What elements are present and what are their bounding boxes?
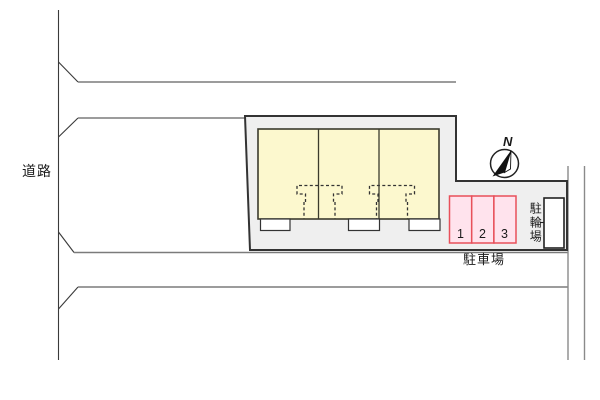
site-plan: 道路 駐車場 駐輪場 N 1 2 3 — [0, 0, 600, 400]
road-taper-1 — [59, 62, 79, 82]
parking-stall-number-2: 2 — [471, 228, 494, 242]
building-outline — [258, 129, 439, 219]
porch-1 — [261, 219, 291, 231]
parking-stall-number-3: 3 — [493, 228, 516, 242]
parking-lot-label: 駐車場 — [444, 253, 524, 267]
road-taper-3 — [59, 232, 75, 253]
compass-north-label: N — [503, 135, 512, 149]
bicycle-parking-label: 駐輪場 — [528, 202, 541, 244]
porch-2 — [349, 219, 380, 231]
parking-stall-number-1: 1 — [449, 228, 472, 242]
road-taper-2 — [59, 118, 79, 137]
site-plan-drawing — [0, 0, 600, 400]
road-label: 道路 — [19, 164, 55, 179]
compass-icon — [491, 150, 519, 178]
road-taper-4 — [59, 287, 79, 309]
bicycle-shed — [544, 198, 564, 248]
porch-3 — [409, 219, 440, 231]
